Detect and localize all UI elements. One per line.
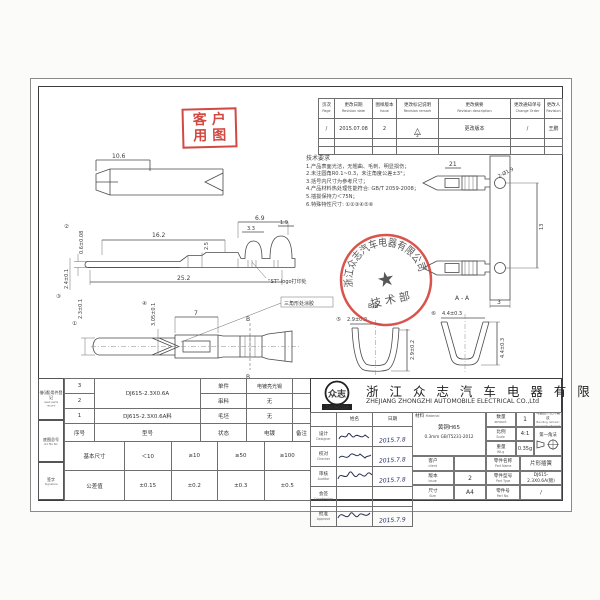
part-no: 1 xyxy=(65,409,95,424)
client-value xyxy=(454,456,486,471)
issue-value: 2 xyxy=(454,471,486,486)
sig-row-designer: 设计Designer 2015.7.8 xyxy=(311,427,413,447)
part-state: 单件 xyxy=(201,379,247,394)
sign-date: 2015.7.8 xyxy=(379,476,406,484)
revision-row-1: / 2015.07.08 2 △2 更改版本 / 王鹏 xyxy=(319,119,563,139)
part-type-label: 零件型号Part Type xyxy=(486,471,520,486)
view-side-profile: ② 0.6±0.08 ③ 2.4±0.1 16.2 2.5 6.9 3.3 1.… xyxy=(52,210,322,302)
rev-h-remark: 更改标记说明 xyxy=(397,103,438,109)
notes-title: 技术要求 xyxy=(306,155,430,163)
rev-h-page: 页次 xyxy=(319,103,334,109)
note-line: 5.插拔保持力＜75N； xyxy=(306,194,430,202)
tolerance-value-row: 公差值 ±0.15 ±0.2 ±0.3 ±0.5 xyxy=(65,471,311,501)
rev-order: / xyxy=(511,119,545,139)
note-line: 4.产品材料热处理性能符合: GB/T 2059-2008； xyxy=(306,186,430,194)
dim-aa-height: 4.4±0.3 xyxy=(500,338,506,358)
view-top-profile: ① 2.3±0.1 ④ 3.05±0.1 7 B B 三角形处涂胶 xyxy=(55,295,335,387)
part-state: 毛坯 xyxy=(201,409,247,424)
company-name-en: ZHEJIANG ZHONGZHI AUTOMOBILE ELECTRICAL … xyxy=(366,398,562,405)
tolerance-label: 公差值 xyxy=(65,471,125,501)
revision-header-row: 页次Page 更改日期Revision date 图样版本Issue 更改标记说… xyxy=(319,99,563,119)
dim-front-height: 2.5 xyxy=(204,242,210,250)
parts-row-1: 1 DJ615-2.3X0.6A料 毛坯 无 xyxy=(65,409,311,424)
part-no-value: / xyxy=(520,485,562,500)
material-grade: 黄铜H65 xyxy=(438,423,460,431)
parts-header-row: 序号 型号 状态 电镀 备注 xyxy=(65,424,311,442)
special-dim-mark: ① xyxy=(72,321,77,327)
signature-scribble xyxy=(338,430,371,442)
view-blade-detail: 10.6 xyxy=(88,150,233,205)
rev-h-desc: 更改摘要 xyxy=(439,103,510,109)
dim-bb-height: 2.9±0.2 xyxy=(410,340,416,360)
logo-cn: 众志 xyxy=(328,388,346,400)
part-state: 串料 xyxy=(201,394,247,409)
parts-row-3: 3 DJ615-2.3X0.6A 单件 电镀亮光锡 xyxy=(65,379,311,394)
part-type: DJ615-2.3X0.6A xyxy=(95,379,201,409)
seal-star-icon: ★ xyxy=(375,265,398,292)
tolerance-table: 基本尺寸 ＜10 ≥10 ≥50 ≥100 公差值 ±0.15 ±0.2 ±0.… xyxy=(64,441,311,501)
dim-pin-width: 2.4±0.1 xyxy=(64,269,70,289)
projection-cell: 第一角法 xyxy=(534,427,562,456)
bend-note-cell: 弯曲处不允许裂纹 Bending remark: no crack allowe… xyxy=(534,412,562,427)
scale-label: 比例Scale xyxy=(486,427,516,442)
signature-table: 姓名 日期 设计Designer 2015.7.8 校对Checker 2015… xyxy=(310,412,413,527)
dim-wire-crimp: 3.3 xyxy=(247,226,255,232)
customer-stamp-line2: 用图 xyxy=(193,127,231,144)
part-plating: 无 xyxy=(247,409,293,424)
margin-block-old-file: 底图总号 old file No. xyxy=(38,420,64,462)
sign-date: 2015.7.8 xyxy=(379,436,406,444)
part-type: DJ615-2.3X0.6A料 xyxy=(95,409,201,424)
special-dim-mark: ② xyxy=(64,223,69,230)
rev-date: 2015.07.08 xyxy=(335,119,373,139)
note-line: 2.未注圆角R0.1~0.3，未注角度公差±3°； xyxy=(306,171,430,179)
part-no: 3 xyxy=(65,379,95,394)
revision-triangle-icon: △2 xyxy=(414,128,421,137)
part-name-label: 零件名称Part Name xyxy=(486,456,520,471)
signature-scribble xyxy=(337,469,372,482)
amount-label: 数量amount xyxy=(486,412,516,427)
sig-row-approve: 批准Approve 2015.7.9 xyxy=(311,507,413,527)
customer-stamp-line1: 客户 xyxy=(193,111,231,128)
rev-h-order: 更改通知单号 xyxy=(511,103,544,109)
dim-window: 7 xyxy=(194,310,198,317)
weight-label: 重量Wt.g xyxy=(486,441,516,456)
seal-dept-text: 技 术 部 xyxy=(369,289,411,311)
rev-h-by: 更改人 xyxy=(545,103,562,109)
material-spec: 0.3mm GB/T5231-2012 xyxy=(424,434,473,439)
label-glue-triangle: 三角形处涂胶 xyxy=(284,300,314,307)
customer-use-stamp: 客户 用图 xyxy=(181,107,237,148)
revision-row-empty xyxy=(319,139,563,147)
company-logo: 众志 ZHONGZHI xyxy=(316,380,362,410)
dim-tab: 1.9 xyxy=(280,220,288,226)
weight-value: 0.35g xyxy=(516,441,534,456)
tolerance-basic-row: 基本尺寸 ＜10 ≥10 ≥50 ≥100 xyxy=(65,442,311,471)
technical-dept-seal: 浙江众志汽车电器有限公司 ★ 技 术 部 xyxy=(327,221,446,340)
part-type-value: DJ615-2.3X0.6A(镀) xyxy=(520,471,562,486)
dim-pitch: 21 xyxy=(449,161,457,168)
material-cell: 材料 Material 黄铜H65 0.3mm GB/T5231-2012 xyxy=(412,412,486,456)
part-name-value: 片形插簧 xyxy=(520,456,562,471)
sign-date: 2015.7.9 xyxy=(379,516,406,524)
dim-crimp-span: 6.9 xyxy=(255,215,265,222)
sig-header-row: 姓名 日期 xyxy=(311,413,413,427)
special-dim-mark: ⑤ xyxy=(336,317,341,323)
technical-notes: 技术要求 1.产品表面光洁，无翘曲、毛刺、明显损伤； 2.未注圆角R0.1~0.… xyxy=(306,155,430,209)
first-angle-projection-icon xyxy=(535,438,561,451)
rev-remark: △2 xyxy=(397,119,439,139)
rev-page: / xyxy=(319,119,335,139)
special-dim-mark: ④ xyxy=(142,301,147,307)
dim-pin-thickness: 0.6±0.08 xyxy=(79,231,85,254)
parts-table: 3 DJ615-2.3X0.6A 单件 电镀亮光锡 2 串料 无 1 DJ615… xyxy=(64,378,311,442)
sign-date: 2015.7.8 xyxy=(379,456,406,464)
drawing-sheet: 客户 用图 页次Page 更改日期Revision date 图样版本Issue… xyxy=(0,0,600,600)
size-label: 尺寸Size xyxy=(412,485,454,500)
scale-value: 4:1 xyxy=(516,427,534,442)
issue-label: 版本Issue xyxy=(412,471,454,486)
amount-value: 1 xyxy=(516,412,534,427)
rev-issue: 2 xyxy=(373,119,397,139)
rev-desc: 更改版本 xyxy=(439,119,511,139)
rev-h-date: 更改日期 xyxy=(335,103,372,109)
section-aa-title: A-A xyxy=(455,295,471,302)
tolerance-label: 基本尺寸 xyxy=(65,442,125,471)
dim-blade-width: 10.6 xyxy=(112,153,126,160)
label-st-logo-position: “ST” logo打印处 xyxy=(268,278,307,285)
part-plating: 电镀亮光锡 xyxy=(247,379,293,394)
logo-en: ZHONGZHI xyxy=(326,405,349,410)
part-no-label: 零件号Part No. xyxy=(486,485,520,500)
dim-holes: 2-Ø1.9 xyxy=(497,166,515,180)
client-label: 客户client xyxy=(412,456,454,471)
margin-block-used-parts: 借(通)用件登记 used parts record xyxy=(38,378,64,420)
part-no: 2 xyxy=(65,394,95,409)
signature-scribble xyxy=(337,509,372,522)
sig-row-auditor: 审核Auditor 2015.7.8 xyxy=(311,467,413,487)
dim-pin-width-top: 2.3±0.1 xyxy=(78,299,84,319)
rev-by: 王鹏 xyxy=(545,119,563,139)
dim-neck: 3.05±0.1 xyxy=(151,303,157,326)
rev-h-issue: 图样版本 xyxy=(373,103,396,109)
sig-row-checker: 校对Checker 2015.7.8 xyxy=(311,447,413,467)
part-plating: 无 xyxy=(247,394,293,409)
signature-scribble xyxy=(338,450,371,462)
dim-hole-span: 13 xyxy=(539,224,545,230)
dim-total-length: 25.2 xyxy=(177,275,191,282)
dim-body-length: 16.2 xyxy=(152,232,166,239)
note-line: 6.特殊特性尺寸: ①②③④⑤⑥ xyxy=(306,202,430,210)
revision-table: 页次Page 更改日期Revision date 图样版本Issue 更改标记说… xyxy=(318,98,563,155)
margin-block-signature: 签字 Signature xyxy=(38,462,64,500)
size-value: A4 xyxy=(454,485,486,500)
section-mark-b: B xyxy=(246,316,250,323)
sig-row-countersign: 会签Countersign xyxy=(311,487,413,507)
